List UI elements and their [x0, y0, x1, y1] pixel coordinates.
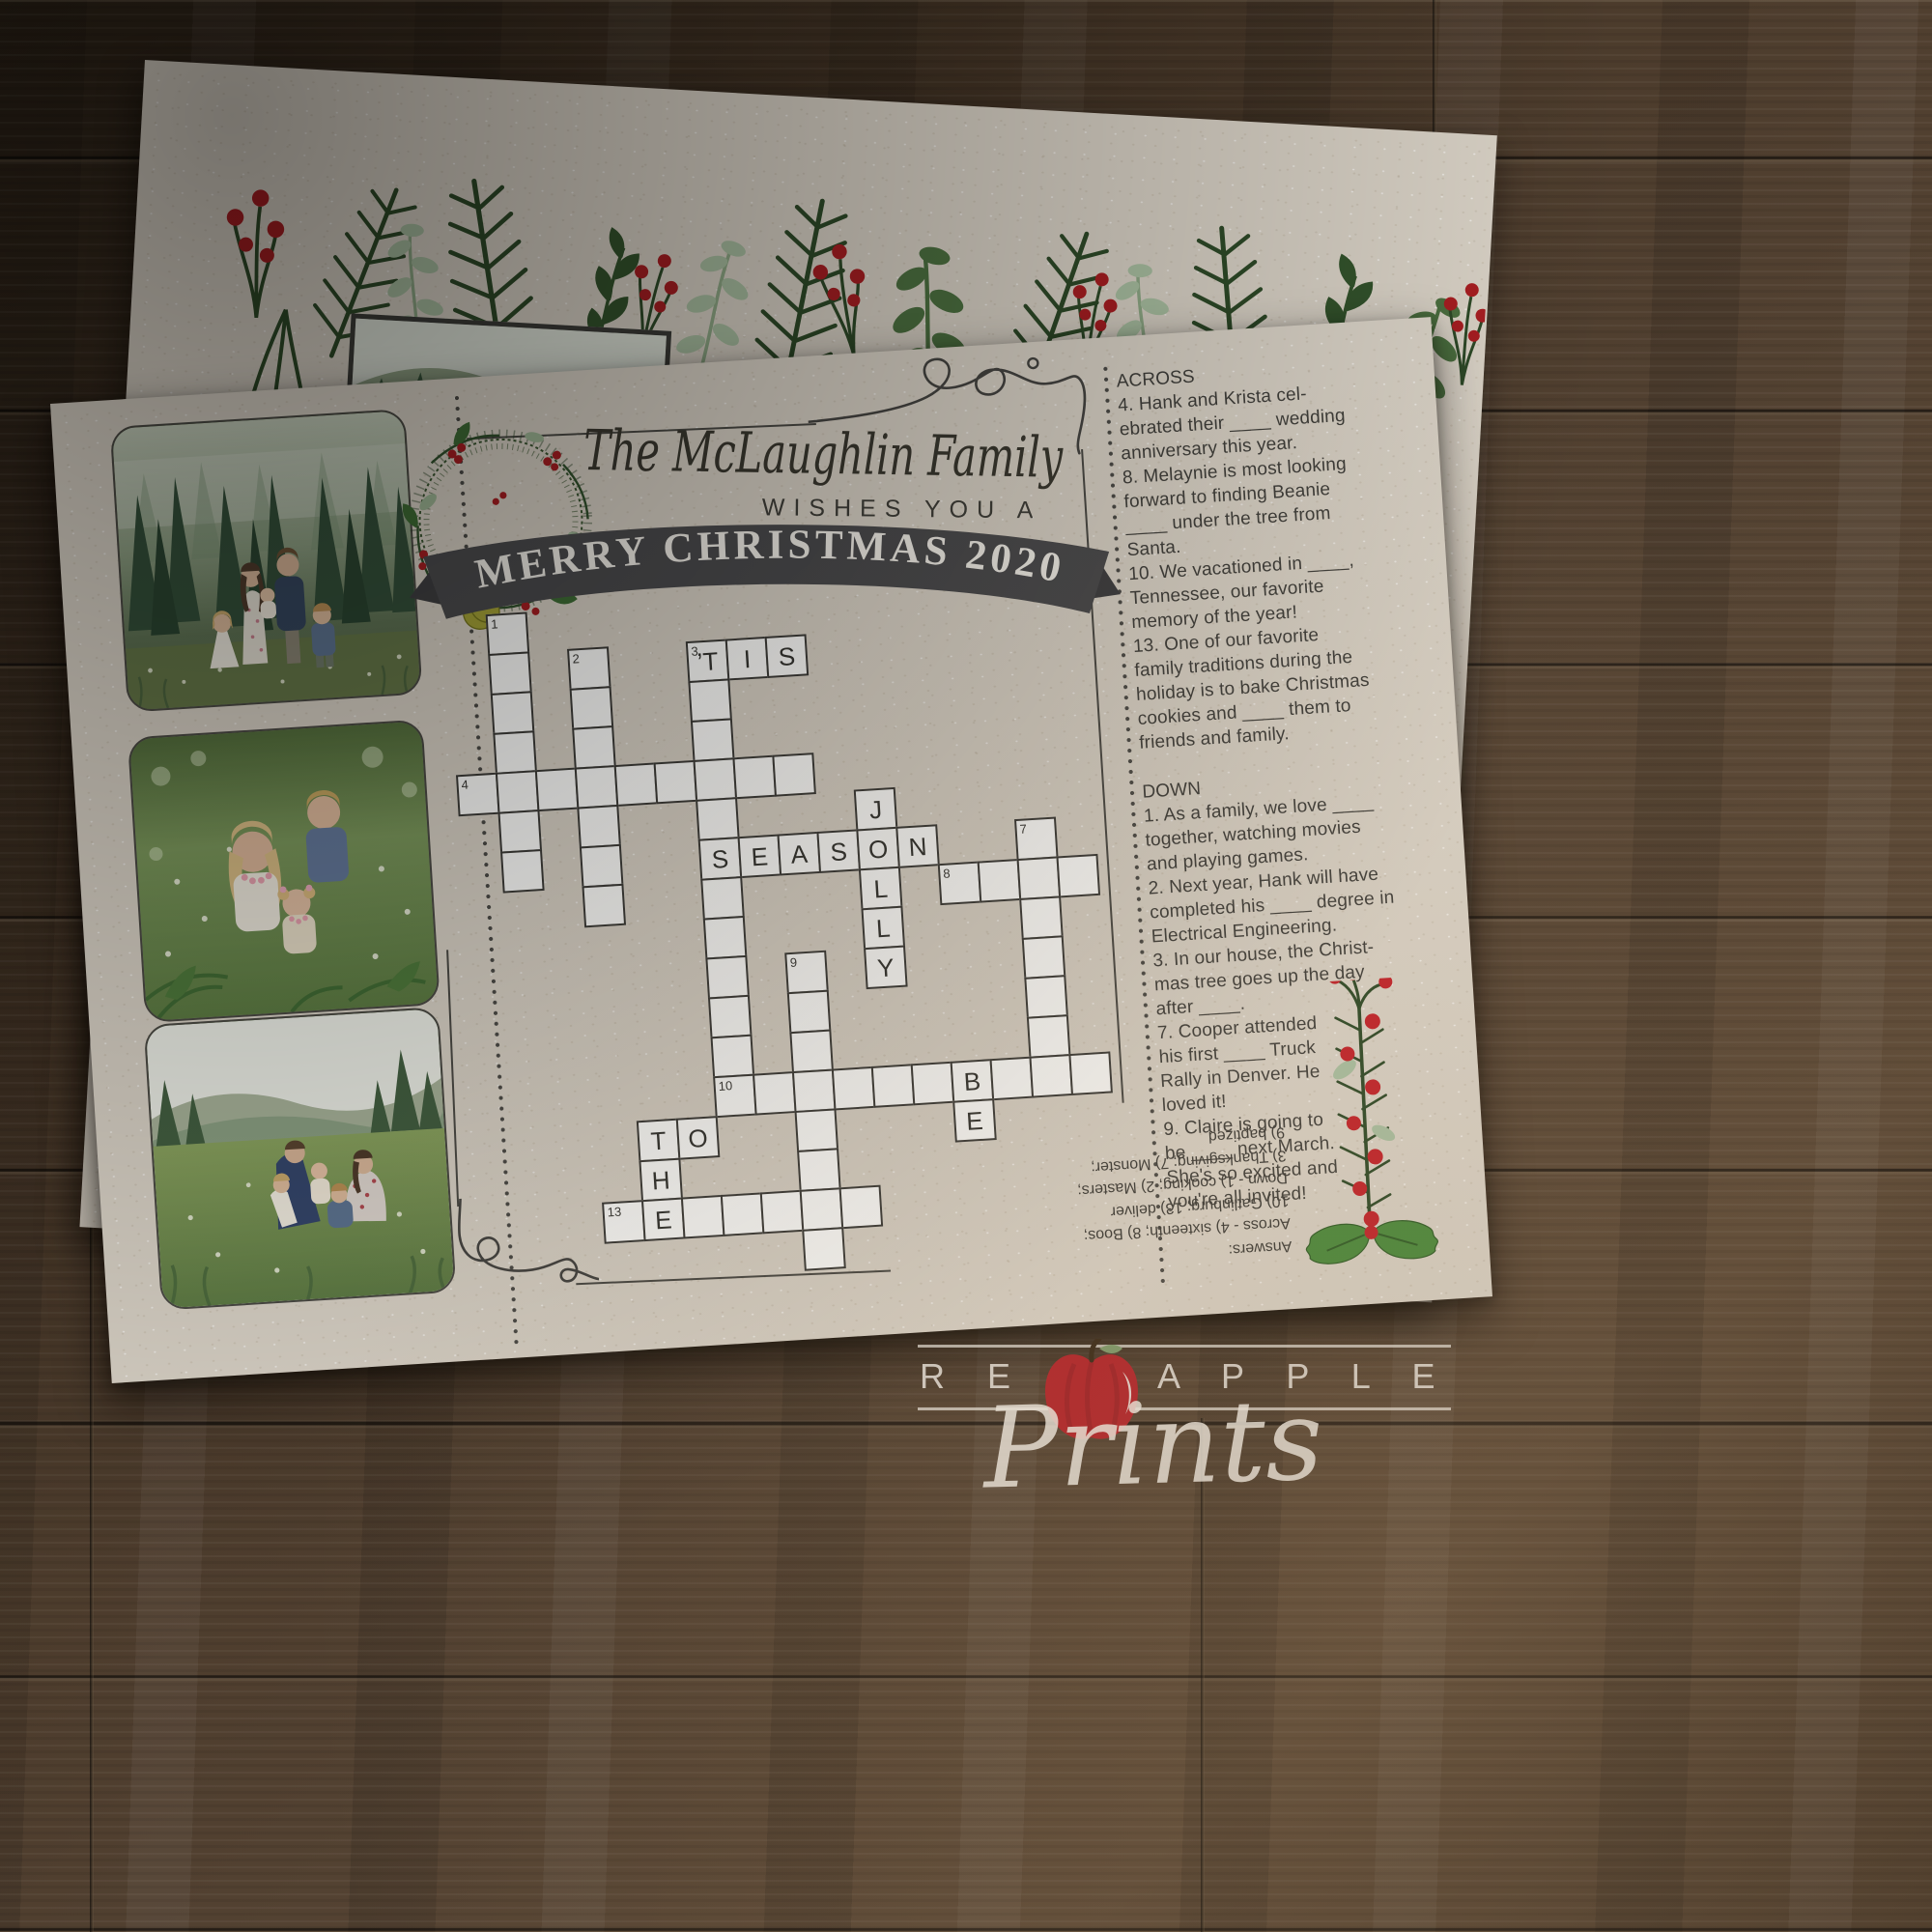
crossword-cell: 9	[784, 951, 829, 995]
crossword-cell: 7	[1014, 816, 1059, 861]
crossword-cell: O	[856, 827, 900, 871]
prefilled-letter: E	[954, 1100, 994, 1140]
crossword-cell	[794, 1108, 838, 1152]
prefilled-letter: ’T	[688, 641, 727, 681]
crossword-cell	[497, 810, 542, 854]
prefilled-letter: O	[858, 829, 897, 868]
crossword-cell	[978, 859, 1022, 903]
crossword-cell	[797, 1148, 841, 1192]
crossword-cell	[753, 1071, 797, 1116]
crossword-cell	[491, 691, 535, 735]
crossword-cell	[1019, 895, 1064, 940]
crossword-cell: S	[698, 837, 743, 881]
crossword-cell	[1029, 1054, 1073, 1098]
crossword-cell	[789, 1030, 834, 1074]
crossword-cell: T	[637, 1119, 681, 1163]
crossword-cell: A	[777, 832, 821, 876]
crossword-cell	[500, 849, 545, 894]
crossword-cell: O	[676, 1116, 721, 1160]
crossword-cell: 8	[938, 862, 982, 906]
crossword-cell: 2	[567, 646, 611, 691]
prefilled-letter: S	[700, 838, 740, 878]
crossword-cell	[839, 1185, 884, 1230]
photo-1	[110, 409, 423, 713]
prefilled-letter: A	[780, 834, 819, 873]
crossword-cell: L	[861, 906, 905, 951]
crossword-cell	[654, 760, 698, 805]
clue-number: 13	[607, 1205, 621, 1220]
crossword-cell	[1017, 856, 1062, 900]
crossword-cell	[703, 916, 748, 960]
prefilled-letter: S	[767, 636, 807, 675]
answer-key: Answers:Across - 4) sixteenth; 8) Boos;1…	[994, 1112, 1293, 1275]
crossword-cell	[493, 730, 537, 775]
crossword-cell	[705, 955, 750, 1000]
crossword-cell	[708, 995, 753, 1039]
photo-2	[128, 719, 440, 1023]
crossword-cell: S	[765, 634, 810, 678]
prefilled-letter: O	[678, 1118, 718, 1157]
crossword-cell	[535, 768, 580, 812]
crossword-cell	[700, 876, 745, 921]
clue-number: 2	[572, 651, 580, 666]
crossword-cell	[681, 1195, 725, 1239]
crossword-cell: I	[725, 637, 770, 681]
crossword-cell	[693, 757, 737, 802]
crossword-cell	[1056, 854, 1100, 898]
crossword-cell	[488, 651, 532, 696]
crossword-cell	[614, 762, 659, 807]
crossword-cell	[772, 753, 816, 797]
clue-number: 1	[491, 616, 498, 631]
crossword-cell	[911, 1062, 955, 1106]
crossword-cell: E	[641, 1198, 686, 1242]
photo-3	[144, 1007, 457, 1311]
watermark-rule-top	[918, 1345, 1451, 1348]
prefilled-letter: N	[897, 826, 937, 866]
crossword-cell	[691, 718, 735, 762]
crossword-cell: S	[816, 829, 861, 873]
prefilled-letter: L	[864, 908, 903, 948]
crossword-cell	[787, 990, 832, 1035]
crossword-cell	[580, 844, 624, 889]
family-of-five-pine-forest-photo	[112, 411, 421, 710]
crossword-cell	[575, 765, 619, 810]
crossword-cell: J	[854, 787, 898, 832]
crossword-cell	[871, 1064, 916, 1108]
family-wildflower-hillside-photo	[146, 1009, 455, 1308]
prefilled-letter: T	[639, 1121, 678, 1160]
crossword-cell	[572, 725, 616, 770]
crossword-cell	[696, 797, 740, 841]
across-clues: ACROSS4. Hank and Krista cel-ebrated the…	[1116, 350, 1462, 755]
crossword-cell	[760, 1190, 805, 1235]
crossword-cell	[582, 884, 626, 928]
crossword-cell	[570, 686, 614, 730]
crossword-cell: B	[951, 1059, 995, 1103]
crossword-cell	[732, 755, 777, 800]
crossword-cell: L	[859, 867, 903, 911]
front-card: The McLaughlin Family WISHES YOU A MERRY…	[50, 317, 1492, 1383]
clue-number: 9	[789, 955, 797, 970]
crossword-cell	[990, 1057, 1035, 1101]
family-name-text: The McLaughlin Family	[583, 417, 1065, 491]
prefilled-letter: E	[643, 1200, 683, 1239]
prefilled-letter: E	[740, 837, 780, 876]
crossword-cell: 4	[456, 773, 500, 817]
crossword-cell: 1	[486, 611, 530, 656]
crossword-cell: 13	[602, 1200, 646, 1244]
clue-number: 4	[461, 778, 469, 792]
crossword-cell: H	[639, 1158, 683, 1203]
prefilled-letter: L	[861, 868, 900, 908]
prefilled-letter: S	[819, 831, 859, 870]
crossword-cell	[1022, 935, 1066, 980]
prefilled-letter: B	[952, 1061, 992, 1100]
prefilled-letter: I	[727, 639, 767, 678]
clue-number: 8	[943, 866, 951, 880]
crossword-cell	[496, 770, 540, 814]
crossword-cell	[832, 1066, 876, 1111]
prefilled-letter: Y	[866, 948, 905, 987]
crossword-cell	[711, 1035, 755, 1079]
holly-sprig-icon	[1285, 976, 1449, 1303]
crossword-cell	[1027, 1014, 1071, 1059]
product-photo-scene: The McLaughlin Family WISHES YOU A MERRY…	[0, 0, 1932, 1932]
crossword-cell: E	[952, 1098, 997, 1143]
prefilled-letter: J	[856, 789, 895, 829]
crossword-cell	[792, 1068, 837, 1113]
crossword-cell	[1024, 975, 1068, 1019]
crossword-cell: 3’T	[686, 639, 730, 683]
prefilled-letter: H	[641, 1160, 681, 1200]
clue-number: 10	[718, 1078, 732, 1094]
crossword-cell	[800, 1187, 844, 1232]
crossword-cell	[802, 1227, 846, 1271]
crossword-cell: Y	[864, 946, 908, 990]
crossword-cell	[721, 1192, 765, 1236]
clue-number: 7	[1019, 821, 1027, 836]
crossword-cell	[577, 805, 621, 849]
crossword-cell: N	[895, 824, 940, 868]
crossword-cell: E	[738, 835, 782, 879]
watermark-script: Prints	[981, 1375, 1324, 1514]
crossword-cell	[688, 678, 732, 723]
crossword-cell: 10	[713, 1074, 757, 1119]
three-kids-in-meadow-photo	[129, 722, 439, 1021]
crossword-cell	[1068, 1051, 1113, 1095]
